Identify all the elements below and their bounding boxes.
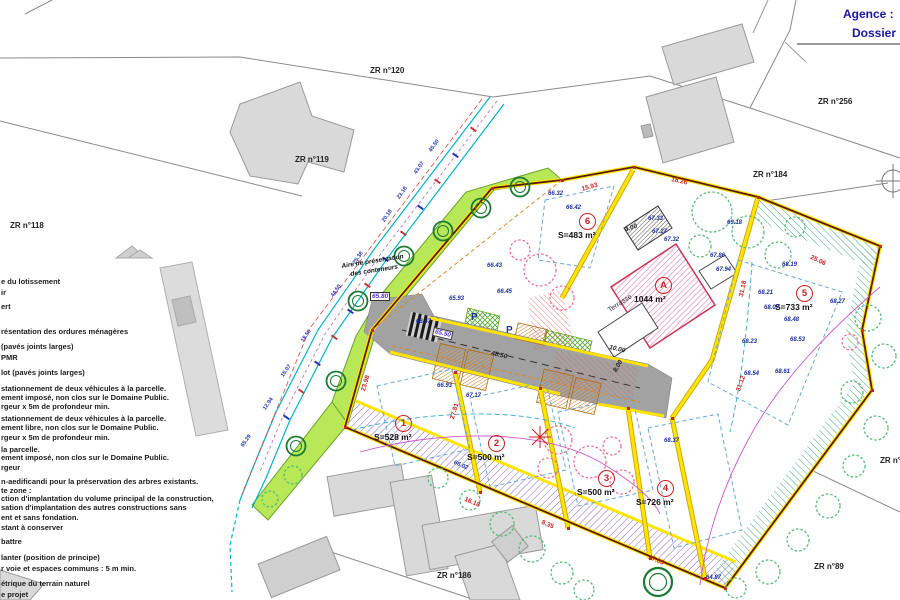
dossier-label: Dossier xyxy=(852,26,896,40)
survey-benchmark-icon xyxy=(876,164,900,198)
agency-label: Agence : xyxy=(843,7,894,21)
site-plan-screenshot: e du lotissementirertrésentation des ord… xyxy=(0,0,900,600)
tree-asterisk-icon xyxy=(529,426,551,448)
legend-symbols xyxy=(116,246,228,436)
site-plan-svg xyxy=(0,0,900,600)
